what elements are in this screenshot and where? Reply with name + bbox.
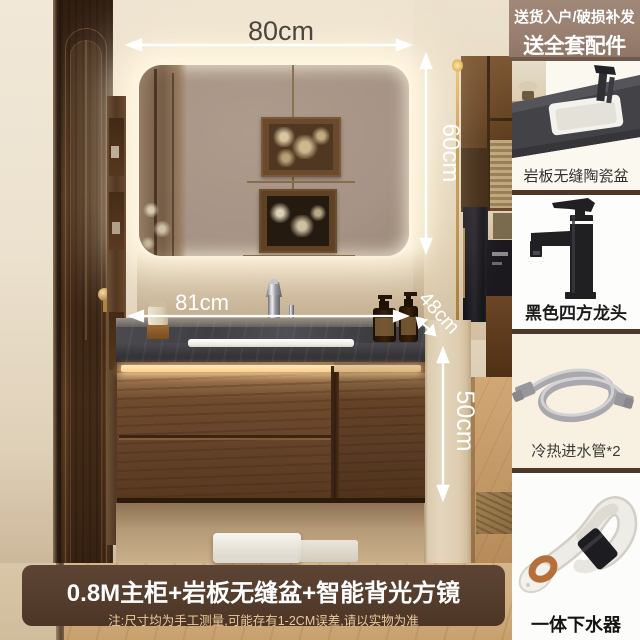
svg-text:81cm: 81cm [175,290,229,315]
svg-text:80cm: 80cm [248,16,314,46]
svg-text:48cm: 48cm [414,288,463,339]
svg-text:60cm: 60cm [437,124,464,183]
svg-text:50cm: 50cm [451,390,479,451]
